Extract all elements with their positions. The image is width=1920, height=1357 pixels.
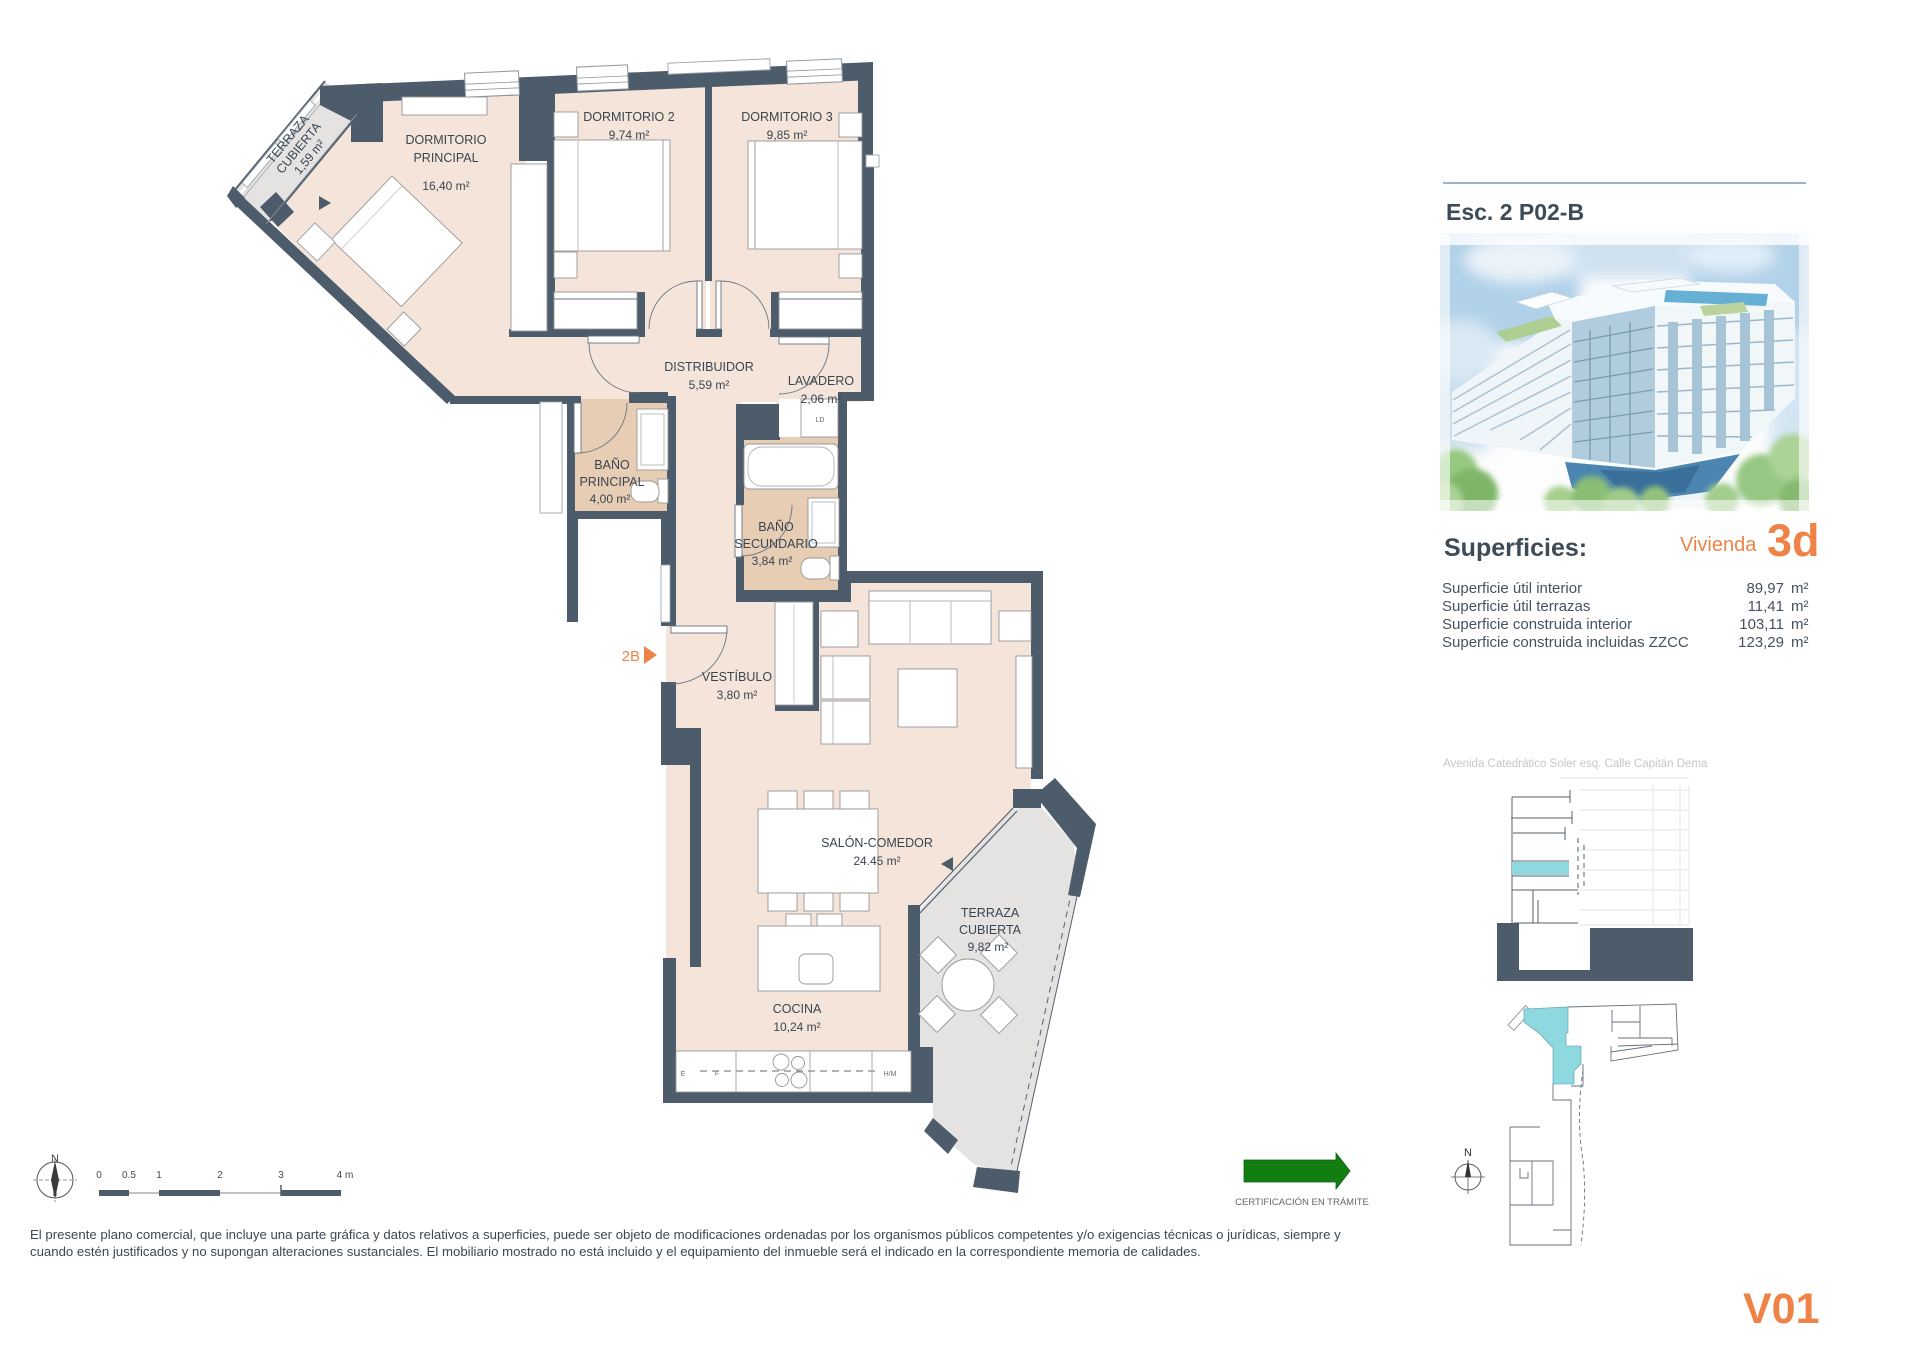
svg-text:SALÓN-COMEDOR: SALÓN-COMEDOR <box>821 835 933 850</box>
svg-text:Superficie construida interior: Superficie construida interior <box>1442 616 1632 633</box>
svg-text:2B: 2B <box>622 648 640 665</box>
svg-text:m²: m² <box>1791 598 1809 615</box>
svg-text:10,24 m²: 10,24 m² <box>773 1020 820 1034</box>
svg-text:9,85 m²: 9,85 m² <box>767 128 808 142</box>
svg-text:DISTRIBUIDOR: DISTRIBUIDOR <box>664 360 754 374</box>
svg-text:Superficie construida incluida: Superficie construida incluidas ZZCC <box>1442 634 1689 651</box>
svg-text:Superficies:: Superficies: <box>1444 534 1587 562</box>
svg-text:CUBIERTA: CUBIERTA <box>959 923 1022 937</box>
svg-text:2,06 m²: 2,06 m² <box>801 392 842 406</box>
svg-text:3,84 m²: 3,84 m² <box>752 554 793 568</box>
svg-text:V01: V01 <box>1743 1285 1820 1333</box>
svg-text:H/M: H/M <box>884 1071 897 1078</box>
svg-text:3,80 m²: 3,80 m² <box>717 688 758 702</box>
svg-text:CERTIFICACIÓN EN TRÁMITE: CERTIFICACIÓN EN TRÁMITE <box>1235 1197 1369 1208</box>
svg-text:SECUNDARIO: SECUNDARIO <box>734 537 818 551</box>
svg-text:cuando estén justificados y no: cuando estén justificados y no supongan … <box>30 1244 1201 1259</box>
svg-text:PRINCIPAL: PRINCIPAL <box>579 475 644 489</box>
svg-text:Esc. 2 P02-B: Esc. 2 P02-B <box>1446 199 1584 225</box>
svg-text:11,41: 11,41 <box>1748 598 1784 615</box>
svg-text:3: 3 <box>278 1170 284 1181</box>
svg-text:4,00 m²: 4,00 m² <box>590 492 631 506</box>
svg-text:Superficie útil terrazas: Superficie útil terrazas <box>1442 598 1590 615</box>
svg-text:1: 1 <box>156 1170 162 1181</box>
svg-text:89,97: 89,97 <box>1746 580 1784 597</box>
svg-text:103,11: 103,11 <box>1739 616 1784 633</box>
svg-text:E: E <box>681 1071 686 1078</box>
svg-text:DORMITORIO 2: DORMITORIO 2 <box>583 110 674 124</box>
svg-text:24.45 m²: 24.45 m² <box>853 854 900 868</box>
svg-text:VESTÍBULO: VESTÍBULO <box>702 669 772 684</box>
svg-text:4 m: 4 m <box>337 1170 354 1181</box>
svg-text:Vivienda: Vivienda <box>1680 534 1757 556</box>
svg-text:16,40 m²: 16,40 m² <box>422 179 469 193</box>
svg-text:BAÑO: BAÑO <box>758 520 794 534</box>
svg-text:2: 2 <box>217 1170 223 1181</box>
svg-text:F: F <box>715 1071 719 1078</box>
svg-text:m²: m² <box>1791 616 1809 633</box>
svg-text:m²: m² <box>1791 634 1809 651</box>
svg-text:5,59 m²: 5,59 m² <box>689 378 730 392</box>
svg-text:LD: LD <box>816 417 825 424</box>
svg-text:123,29: 123,29 <box>1738 634 1784 651</box>
svg-text:LAVADERO: LAVADERO <box>788 374 855 388</box>
svg-text:El presente plano comercial, q: El presente plano comercial, que incluye… <box>30 1227 1341 1242</box>
svg-text:Avenida Catedrático Soler esq.: Avenida Catedrático Soler esq. Calle Cap… <box>1443 758 1708 770</box>
svg-text:N: N <box>51 1153 59 1165</box>
svg-text:m²: m² <box>1791 580 1809 597</box>
svg-text:0: 0 <box>96 1170 102 1181</box>
svg-text:9,74 m²: 9,74 m² <box>609 128 650 142</box>
svg-text:DORMITORIO 3: DORMITORIO 3 <box>741 110 832 124</box>
svg-text:N: N <box>1464 1147 1472 1159</box>
svg-text:TERRAZA: TERRAZA <box>961 906 1020 920</box>
svg-text:BAÑO: BAÑO <box>594 458 630 472</box>
svg-text:Superficie útil interior: Superficie útil interior <box>1442 580 1582 597</box>
svg-text:COCINA: COCINA <box>773 1002 822 1016</box>
svg-text:DORMITORIO: DORMITORIO <box>405 133 486 147</box>
svg-text:9,82 m²: 9,82 m² <box>968 940 1009 954</box>
svg-text:PRINCIPAL: PRINCIPAL <box>413 151 478 165</box>
svg-text:0.5: 0.5 <box>122 1170 136 1181</box>
svg-text:3d: 3d <box>1767 515 1820 566</box>
